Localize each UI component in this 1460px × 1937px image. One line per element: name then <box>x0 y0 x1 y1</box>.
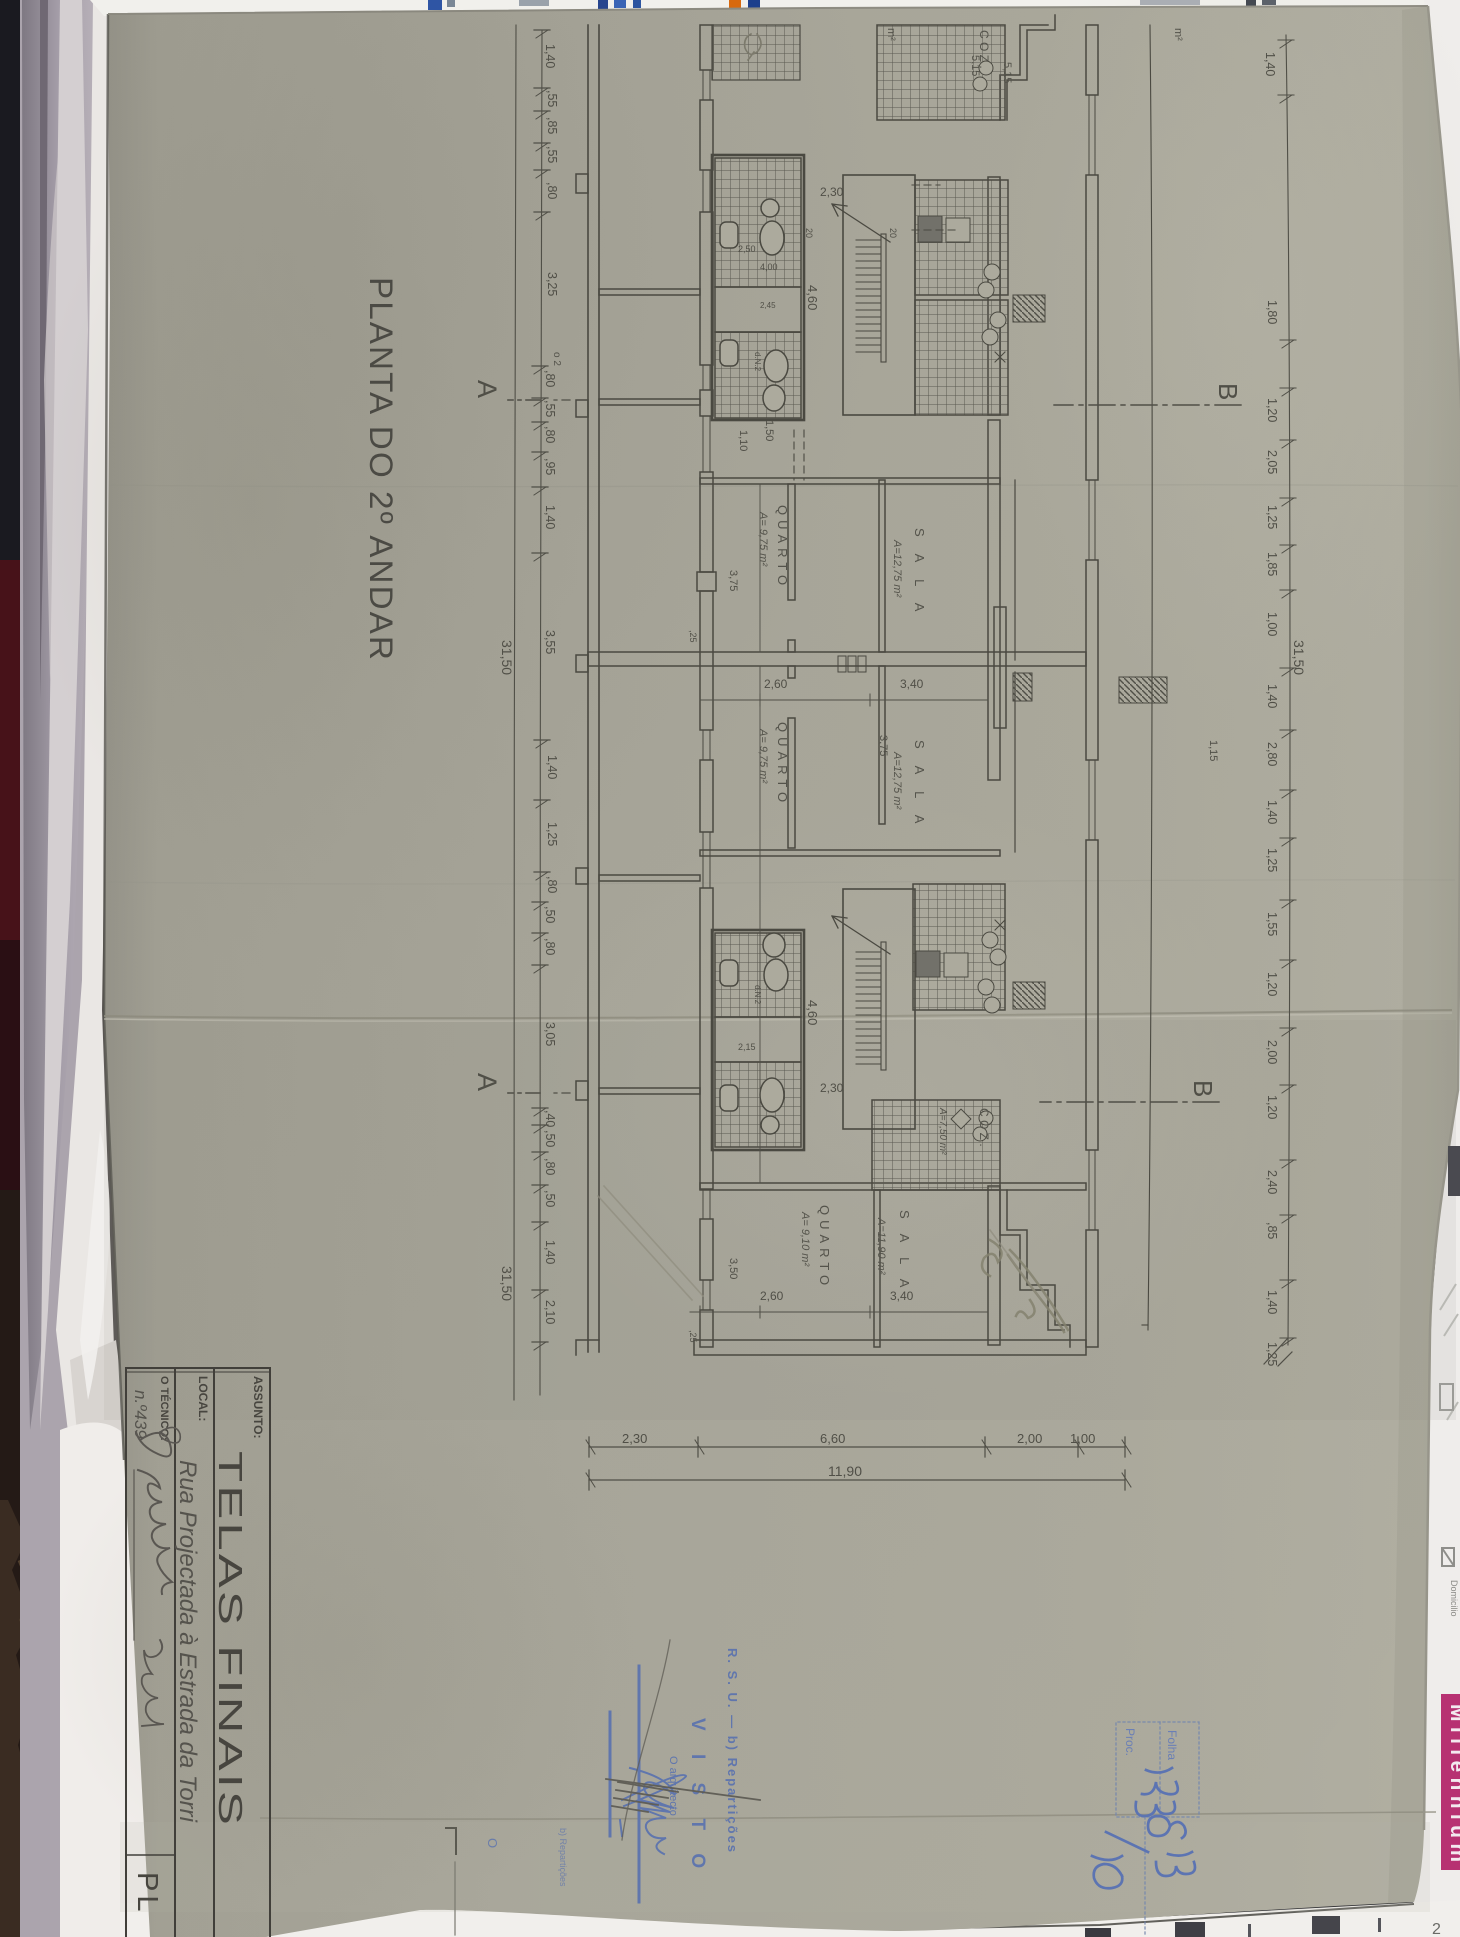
svg-text:2,40: 2,40 <box>1265 1170 1279 1194</box>
svg-text:2,15: 2,15 <box>738 1042 756 1052</box>
svg-text:,55: ,55 <box>545 146 559 163</box>
svg-text:LOCAL:: LOCAL: <box>196 1376 210 1421</box>
svg-text:1,25: 1,25 <box>1265 848 1279 872</box>
svg-text:2,00: 2,00 <box>1017 1431 1042 1446</box>
svg-text:1,20: 1,20 <box>1265 1095 1279 1119</box>
svg-text:,25: ,25 <box>688 630 698 643</box>
svg-text:S A L A: S A L A <box>897 1210 912 1293</box>
svg-text:d.N.2: d.N.2 <box>753 985 762 1005</box>
svg-text:1,40: 1,40 <box>545 755 559 779</box>
svg-text:3,40: 3,40 <box>900 677 924 691</box>
svg-text:31,50: 31,50 <box>1291 640 1307 675</box>
svg-text:S A L A: S A L A <box>912 528 927 618</box>
svg-text:A: A <box>472 1073 502 1091</box>
svg-text:1,20: 1,20 <box>1265 972 1279 996</box>
svg-text:1,10: 1,10 <box>737 430 749 451</box>
svg-text:,85: ,85 <box>545 117 559 134</box>
svg-text:,80: ,80 <box>543 426 557 443</box>
svg-text:m²: m² <box>1172 28 1184 41</box>
svg-text:B: B <box>1188 1080 1218 1097</box>
svg-text:A: A <box>472 380 502 398</box>
svg-text:,80: ,80 <box>543 1158 557 1175</box>
svg-text:,85: ,85 <box>1265 1222 1279 1239</box>
svg-text:1,40: 1,40 <box>543 505 557 529</box>
svg-text:1,40: 1,40 <box>1265 1290 1279 1314</box>
svg-text:1,15: 1,15 <box>1207 740 1219 761</box>
svg-text:2,80: 2,80 <box>1265 742 1279 766</box>
svg-text:Domicilio: Domicilio <box>1449 1580 1459 1617</box>
svg-text:5,15: 5,15 <box>969 55 981 76</box>
svg-text:20: 20 <box>804 228 814 238</box>
svg-text:A=12,75 m²: A=12,75 m² <box>891 751 903 810</box>
svg-text:1,80: 1,80 <box>1265 300 1279 324</box>
svg-text:O: O <box>485 1838 500 1848</box>
svg-text:6,60: 6,60 <box>820 1431 845 1446</box>
svg-text:2,60: 2,60 <box>760 1289 784 1303</box>
svg-text:2,10: 2,10 <box>543 1300 557 1324</box>
svg-text:,25: ,25 <box>688 1330 698 1343</box>
svg-text:R. S. U. — b) Repartições: R. S. U. — b) Repartições <box>725 1648 740 1854</box>
svg-text:4,00: 4,00 <box>760 262 778 272</box>
svg-text:A=11,90 m²: A=11,90 m² <box>875 1217 887 1275</box>
svg-text:,55: ,55 <box>543 400 557 417</box>
svg-text:QUARTO: QUARTO <box>817 1205 832 1290</box>
svg-text:n.º439: n.º439 <box>131 1390 150 1439</box>
svg-text:2,50: 2,50 <box>738 244 756 254</box>
svg-text:1,00: 1,00 <box>1265 612 1279 636</box>
svg-text:1,00: 1,00 <box>1070 1431 1095 1446</box>
svg-text:31,50: 31,50 <box>499 1266 515 1301</box>
svg-text:d.N.2: d.N.2 <box>753 352 762 372</box>
svg-text:1,40: 1,40 <box>1263 52 1277 76</box>
svg-text:2,60: 2,60 <box>764 677 788 691</box>
svg-text:20: 20 <box>888 228 898 238</box>
svg-text:C O Z .: C O Z . <box>977 1108 991 1147</box>
svg-text:A= 9,75 m²: A= 9,75 m² <box>757 511 769 566</box>
svg-text:PLANTA DO 2º ANDAR: PLANTA DO 2º ANDAR <box>363 277 399 662</box>
svg-text:4,60: 4,60 <box>805 1000 820 1025</box>
svg-text:5,15: 5,15 <box>1001 62 1013 83</box>
svg-text:QUARTO: QUARTO <box>775 505 790 590</box>
svg-text:A= 9,75 m²: A= 9,75 m² <box>757 728 769 783</box>
svg-text:2,30: 2,30 <box>820 1081 844 1095</box>
svg-text:,95: ,95 <box>543 458 557 475</box>
svg-text:1,20: 1,20 <box>1265 398 1279 422</box>
svg-text:1,25: 1,25 <box>1265 1342 1279 1366</box>
svg-text:1,50: 1,50 <box>763 420 775 441</box>
svg-text:,50: ,50 <box>543 906 557 923</box>
svg-text:1,40: 1,40 <box>1265 684 1279 708</box>
svg-text:,40: ,40 <box>543 1110 557 1127</box>
svg-text:3,55: 3,55 <box>543 630 557 654</box>
svg-text:S A L A: S A L A <box>912 740 927 830</box>
svg-text:3,75: 3,75 <box>727 570 739 591</box>
svg-text:2,05: 2,05 <box>1265 450 1279 474</box>
svg-text:A=12,75 m²: A=12,75 m² <box>891 539 903 598</box>
svg-text:2,30: 2,30 <box>820 185 844 199</box>
svg-text:TELAS FINAIS: TELAS FINAIS <box>212 1451 249 1828</box>
svg-text:3,75: 3,75 <box>877 735 889 756</box>
svg-text:O TÉCNICO:: O TÉCNICO: <box>158 1376 171 1441</box>
svg-text:ASSUNTO:: ASSUNTO: <box>251 1376 265 1438</box>
svg-text:4,60: 4,60 <box>805 285 820 310</box>
svg-text:3,05: 3,05 <box>543 1022 557 1046</box>
svg-text:,50: ,50 <box>543 1130 557 1147</box>
svg-text:1,40: 1,40 <box>543 44 557 68</box>
svg-text:1,25: 1,25 <box>545 822 559 846</box>
svg-text:,80: ,80 <box>543 938 557 955</box>
svg-text:2,30: 2,30 <box>622 1431 647 1446</box>
svg-text:31,50: 31,50 <box>499 640 515 675</box>
svg-text:2,00: 2,00 <box>1265 1040 1279 1064</box>
svg-text:1,40: 1,40 <box>543 1240 557 1264</box>
svg-text:QUARTO: QUARTO <box>775 722 790 807</box>
svg-text:A= 9,10 m²: A= 9,10 m² <box>799 1211 811 1266</box>
svg-text:2: 2 <box>1432 1921 1441 1937</box>
svg-text:1,85: 1,85 <box>1265 552 1279 576</box>
svg-text:3,50: 3,50 <box>727 1258 739 1279</box>
svg-text:A=7,50 m²: A=7,50 m² <box>937 1107 948 1155</box>
svg-text:m²: m² <box>885 28 897 41</box>
svg-text:,80: ,80 <box>545 182 559 199</box>
svg-text:1,40: 1,40 <box>1265 800 1279 824</box>
svg-text:b) Repartições: b) Repartições <box>558 1828 568 1887</box>
svg-text:V I S T O: V I S T O <box>687 1718 708 1877</box>
svg-text:PL: PL <box>131 1872 163 1915</box>
svg-text:B: B <box>1213 383 1243 400</box>
svg-text:2,45: 2,45 <box>760 301 776 310</box>
svg-text:,80: ,80 <box>545 876 559 893</box>
svg-text:Rua Projectada à Estrada d: Rua Projectada à Estrada da Torri <box>174 1460 201 1823</box>
svg-text:11,90: 11,90 <box>828 1463 862 1479</box>
svg-text:o 2: o 2 <box>551 352 562 366</box>
svg-text:3,25: 3,25 <box>545 272 559 296</box>
svg-text:,80: ,80 <box>543 370 557 387</box>
svg-text:1,55: 1,55 <box>1265 912 1279 936</box>
svg-text:1,25: 1,25 <box>1265 505 1279 529</box>
svg-text:,50: ,50 <box>543 1190 557 1207</box>
svg-text:Proc.: Proc. <box>1123 1728 1137 1756</box>
svg-text:Folha: Folha <box>1165 1730 1179 1760</box>
svg-text:,55: ,55 <box>545 90 559 107</box>
